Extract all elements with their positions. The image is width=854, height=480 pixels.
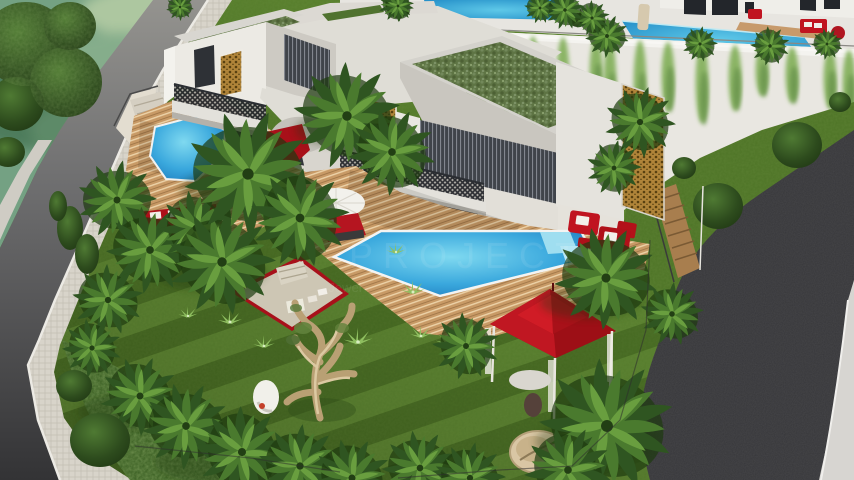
svg-text:Jewel: Jewel <box>328 280 361 295</box>
svg-text:PROJECT: PROJECT <box>349 235 587 276</box>
